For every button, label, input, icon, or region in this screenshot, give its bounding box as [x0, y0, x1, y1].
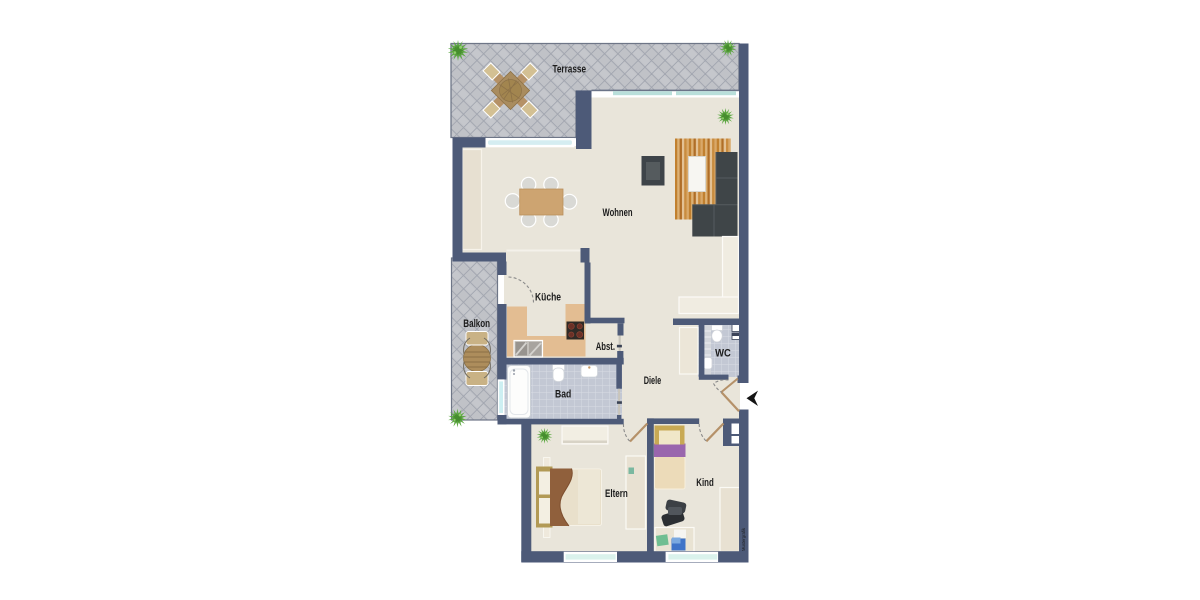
svg-text:Mustergrafik: Mustergrafik	[741, 527, 746, 551]
svg-text:Wohnen: Wohnen	[603, 207, 633, 219]
svg-text:Terrasse: Terrasse	[553, 64, 587, 76]
svg-text:Bad: Bad	[555, 389, 571, 401]
svg-text:Diele: Diele	[644, 375, 662, 387]
svg-text:Balkon: Balkon	[463, 318, 490, 330]
svg-text:WC: WC	[715, 347, 731, 359]
svg-text:Kind: Kind	[696, 477, 714, 489]
svg-text:Küche: Küche	[535, 292, 561, 304]
svg-text:Abst.: Abst.	[596, 341, 615, 353]
svg-text:Eltern: Eltern	[605, 488, 628, 500]
